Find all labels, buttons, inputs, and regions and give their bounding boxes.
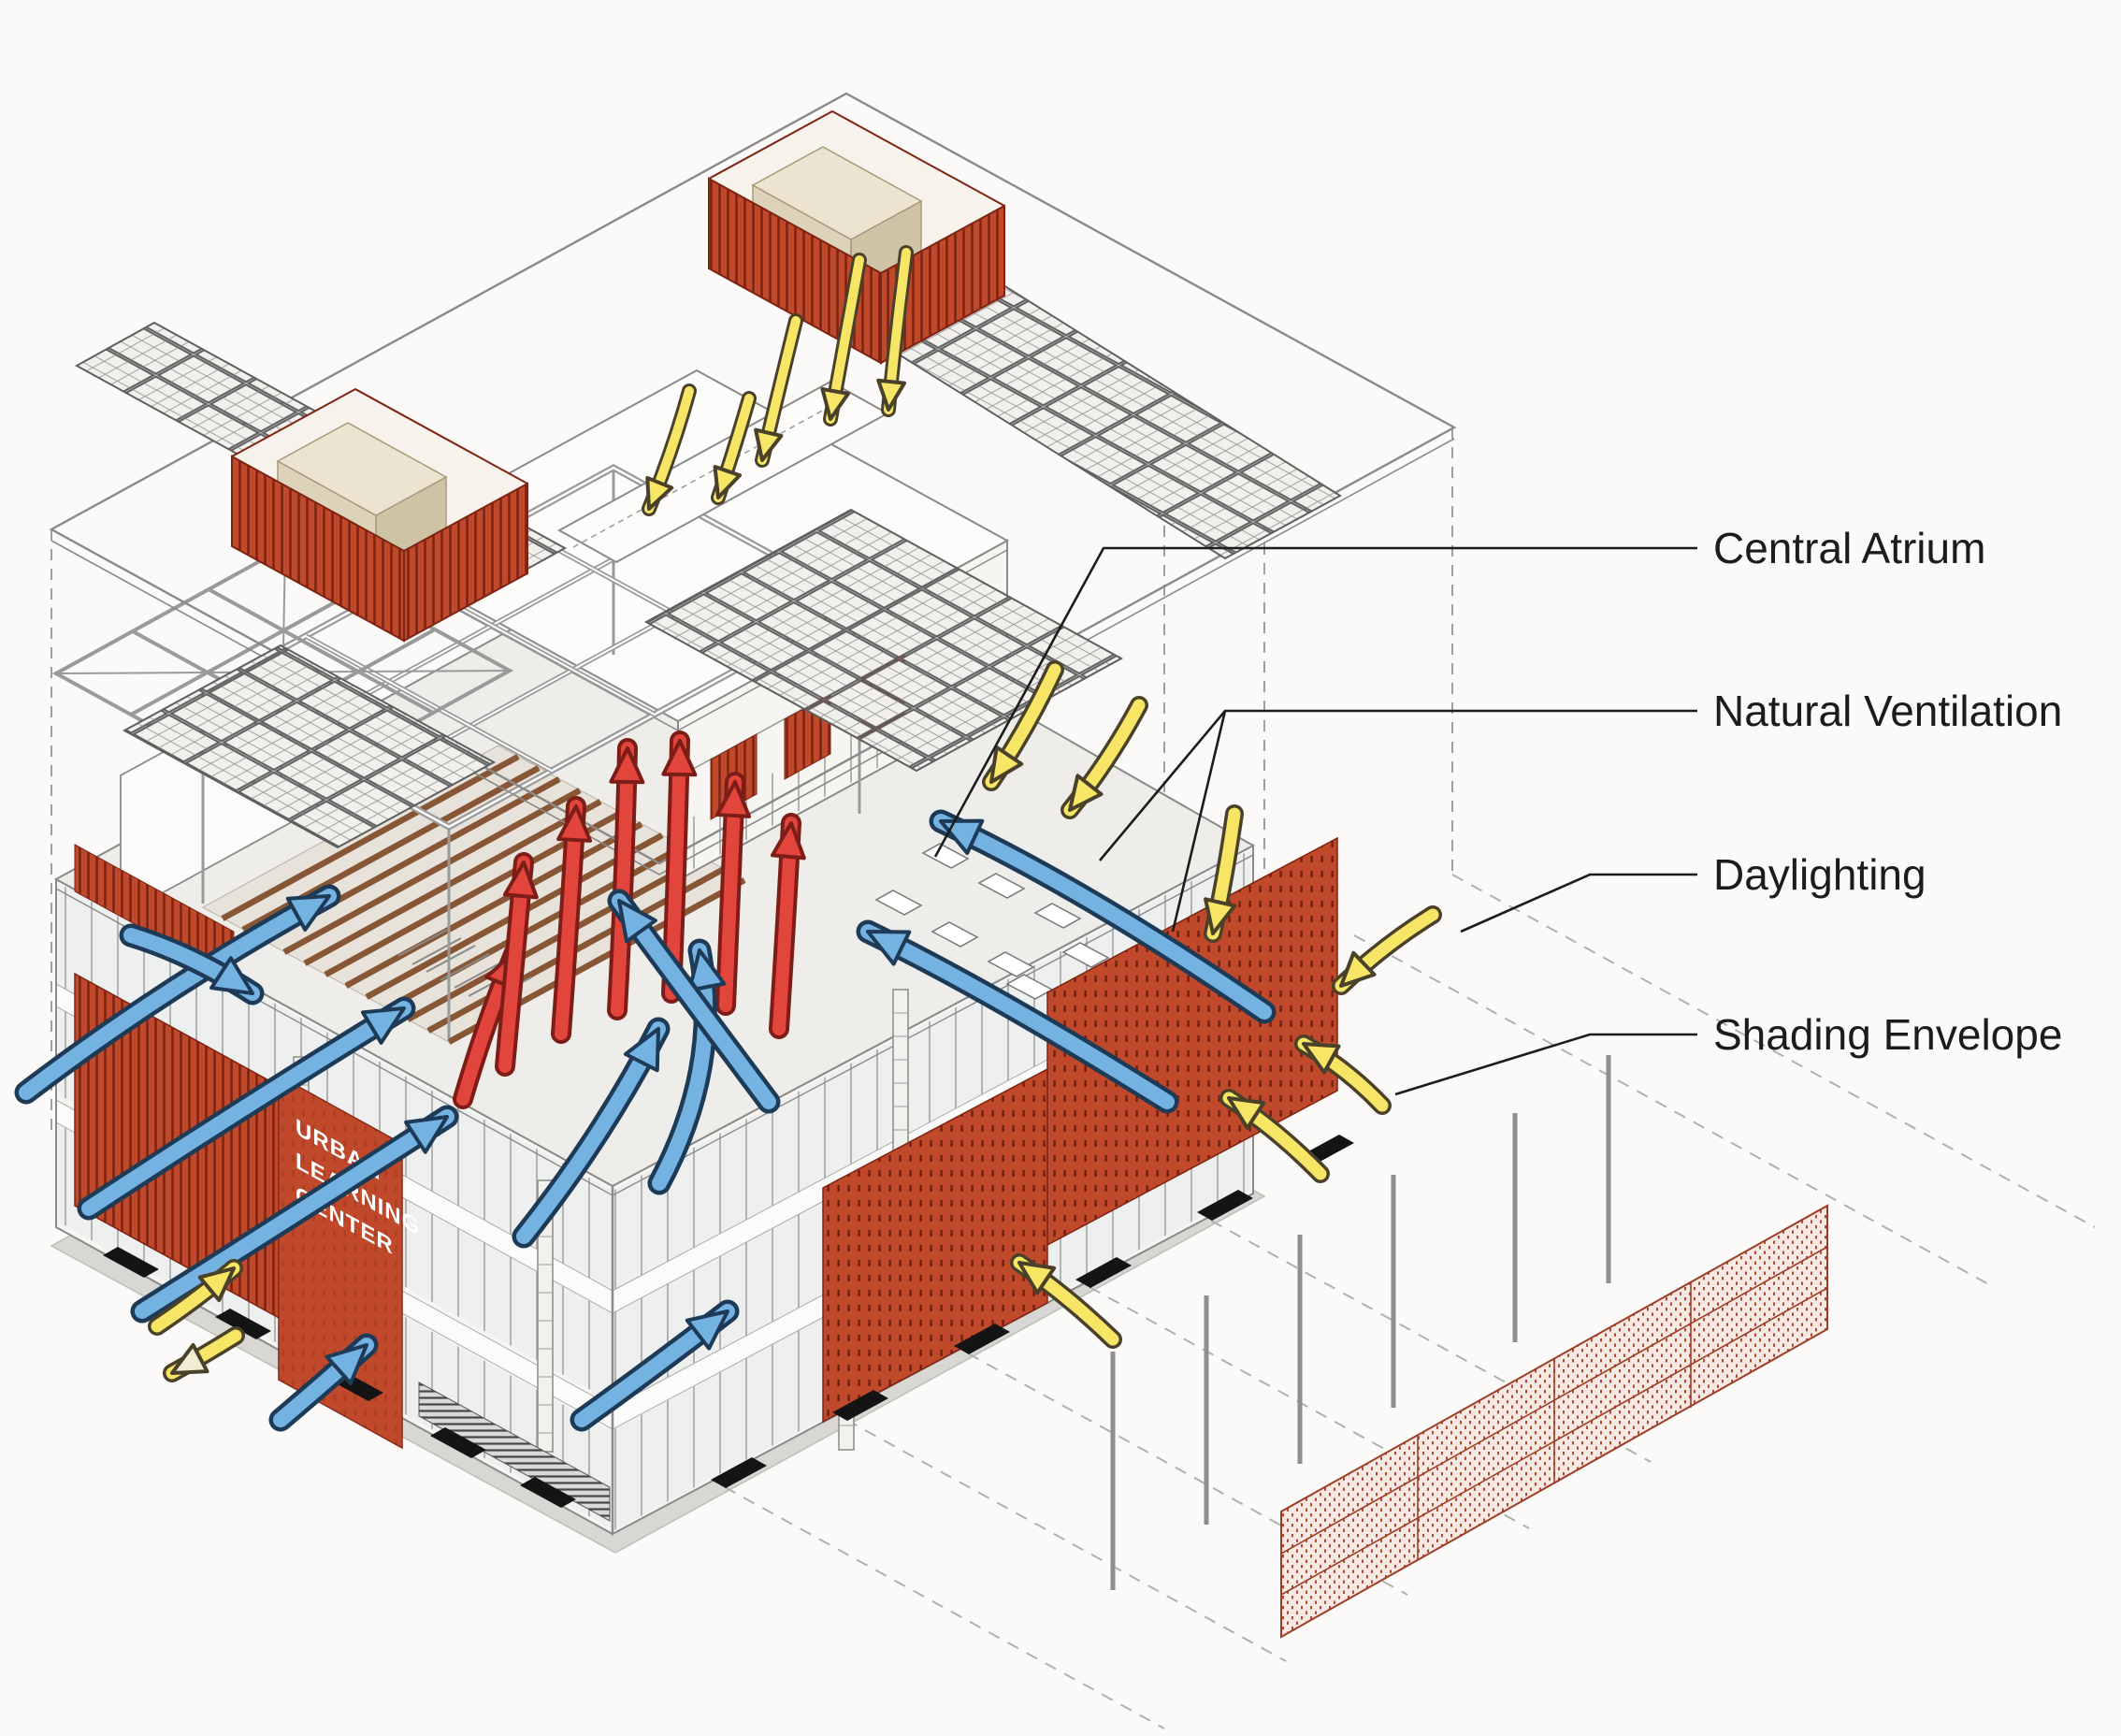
callout-label: Shading Envelope bbox=[1713, 1010, 2062, 1059]
sunlight-arrow bbox=[165, 1336, 236, 1386]
callout-label: Daylighting bbox=[1713, 850, 1926, 899]
callout-label: Natural Ventilation bbox=[1713, 687, 2062, 735]
sunlight-arrow bbox=[1331, 915, 1433, 997]
callout-label: Central Atrium bbox=[1713, 524, 1985, 572]
callout-daylighting: Daylighting bbox=[1461, 850, 1926, 932]
callout-shading-envelope: Shading Envelope bbox=[1395, 1010, 2062, 1094]
exploded-axonometric-diagram: URBAN LEARNING CENTER bbox=[0, 0, 2121, 1736]
